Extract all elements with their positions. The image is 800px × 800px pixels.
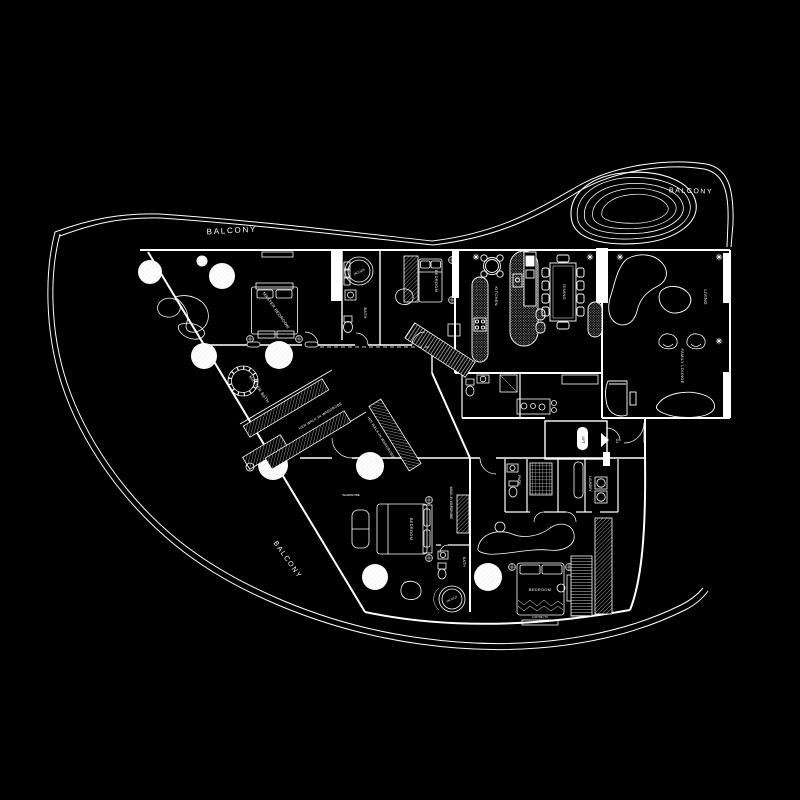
label-dining: DINING <box>562 284 567 299</box>
label-lift: LIFT <box>581 437 585 444</box>
column <box>362 564 388 590</box>
sparkle-icon <box>617 254 623 260</box>
column <box>474 563 502 591</box>
floorplan-canvas: MASTER BEDROOM MASTER BATH HER WALK-IN W… <box>0 0 800 800</box>
column <box>265 341 293 369</box>
side-table <box>449 257 456 264</box>
floorplan-screenshot: MASTER BEDROOM MASTER BATH HER WALK-IN W… <box>0 0 800 800</box>
label-bedroom-right: BEDROOM <box>529 587 551 592</box>
label-living: LIVING <box>703 289 708 304</box>
side-table <box>509 564 516 571</box>
label-unit-number: 01 <box>615 439 620 444</box>
sparkle-icon <box>473 254 479 260</box>
label-bedroom-top: BEDROOM <box>434 270 439 292</box>
sparkle-icon <box>587 254 593 260</box>
label-bath-left: BATH <box>462 557 466 568</box>
wardrobe-shelving <box>457 495 469 533</box>
label-laundry: LAUNDRY <box>588 476 592 492</box>
label-family-lounge: FAMILY LOUNGE <box>680 349 685 384</box>
threshold <box>247 342 260 347</box>
wardrobe-shelving <box>404 256 418 302</box>
bar-counter <box>588 302 602 337</box>
background <box>0 0 800 800</box>
side-table <box>296 336 303 343</box>
column <box>209 263 235 289</box>
column <box>138 260 162 284</box>
label-bedroom-left: BEDROOM <box>409 518 414 540</box>
side-table <box>426 497 433 504</box>
wardrobe-hanging <box>571 556 592 616</box>
wardrobe-shelving <box>595 518 612 614</box>
shower <box>530 463 552 495</box>
label-bath-master: BATH <box>363 307 368 318</box>
column <box>191 343 217 369</box>
threshold <box>305 342 318 347</box>
label-walkin-wardrobe: WALK-IN WARDROBE <box>449 487 453 520</box>
label-tv: LCD 50in TV <box>532 615 548 619</box>
label-wardrobe-small: WARDROBE <box>342 493 360 497</box>
sparkle-icon <box>716 254 722 260</box>
sparkle-icon <box>716 338 722 344</box>
side-table <box>449 297 456 304</box>
label-kitchen: KITCHEN <box>494 286 499 305</box>
side-table <box>426 555 433 562</box>
column <box>356 452 384 480</box>
column <box>197 256 208 267</box>
side-table <box>247 336 254 343</box>
label-pwdr: PWDR <box>517 475 521 485</box>
